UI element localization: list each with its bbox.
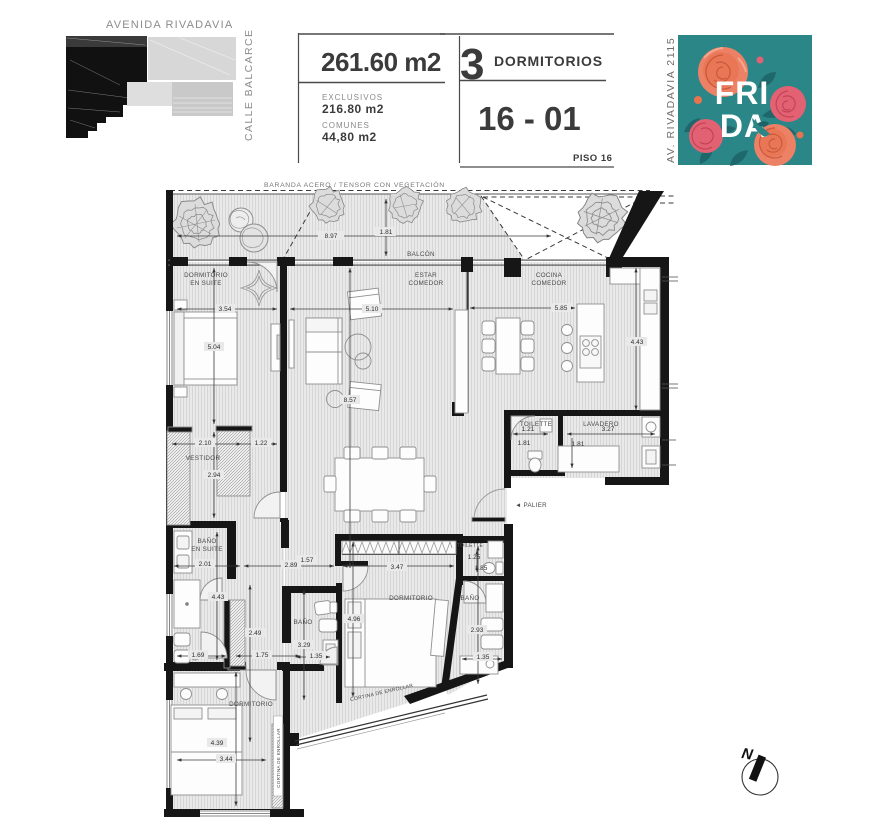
svg-text:AVENIDA RIVADAVIA: AVENIDA RIVADAVIA: [106, 19, 233, 31]
svg-text:261.60 m2: 261.60 m2: [321, 47, 441, 77]
svg-text:8.57: 8.57: [344, 397, 357, 404]
svg-text:EN SUITE: EN SUITE: [191, 546, 222, 553]
svg-text:1.25: 1.25: [468, 554, 481, 561]
svg-text:BAÑO: BAÑO: [460, 593, 479, 602]
svg-text:TOILETTE: TOILETTE: [520, 421, 552, 428]
svg-text:2.49: 2.49: [249, 630, 262, 637]
svg-text:4.39: 4.39: [211, 740, 224, 747]
svg-text:COMEDOR: COMEDOR: [532, 280, 567, 287]
svg-text:1.85: 1.85: [475, 565, 488, 572]
svg-text:2.01: 2.01: [199, 561, 212, 568]
svg-text:BARANDA ACERO / TENSOR CON VEG: BARANDA ACERO / TENSOR CON VEGETACIÓN: [264, 180, 445, 189]
svg-text:CALLE BALCARCE: CALLE BALCARCE: [243, 29, 255, 141]
svg-text:5.10: 5.10: [366, 306, 379, 313]
svg-text:3.29: 3.29: [298, 642, 311, 649]
svg-text:COMUNES: COMUNES: [322, 121, 370, 130]
svg-text:1.81: 1.81: [380, 229, 393, 236]
svg-text:AV. RIVADAVIA 2115: AV. RIVADAVIA 2115: [665, 37, 677, 163]
svg-text:1.35: 1.35: [310, 653, 323, 660]
svg-text:1.22: 1.22: [255, 440, 268, 447]
svg-text:216.80 m2: 216.80 m2: [322, 102, 384, 116]
svg-text:LAVADERO: LAVADERO: [583, 421, 619, 428]
svg-text:COMEDOR: COMEDOR: [409, 280, 444, 287]
svg-text:2.10: 2.10: [199, 440, 212, 447]
svg-text:BALCÓN: BALCÓN: [407, 249, 435, 258]
svg-text:FRI: FRI: [715, 75, 770, 111]
svg-text:CORTINA DE ENROLLAR: CORTINA DE ENROLLAR: [276, 728, 281, 788]
svg-text:2.93: 2.93: [471, 627, 484, 634]
svg-text:3.47: 3.47: [391, 564, 404, 571]
svg-text:4.43: 4.43: [631, 339, 644, 346]
svg-text:5.04: 5.04: [208, 344, 221, 351]
svg-text:3: 3: [460, 40, 484, 89]
svg-text:1.57: 1.57: [301, 557, 314, 564]
svg-text:EN SUITE: EN SUITE: [190, 280, 221, 287]
svg-text:◄ PALIER: ◄ PALIER: [515, 502, 547, 509]
svg-text:COCINA: COCINA: [536, 272, 563, 279]
svg-text:1.69: 1.69: [192, 652, 205, 659]
svg-text:5.85: 5.85: [555, 305, 568, 312]
svg-text:4.43: 4.43: [212, 594, 225, 601]
svg-text:1.75: 1.75: [256, 652, 269, 659]
svg-text:3.54: 3.54: [219, 306, 232, 313]
svg-text:3.44: 3.44: [220, 756, 233, 763]
svg-text:VESTIDOR: VESTIDOR: [186, 455, 221, 462]
svg-text:DORMITORIO: DORMITORIO: [389, 595, 433, 602]
svg-text:2.89: 2.89: [285, 562, 298, 569]
svg-text:16 - 01: 16 - 01: [478, 100, 581, 137]
svg-text:DORMITORIO: DORMITORIO: [229, 701, 273, 708]
svg-text:8.97: 8.97: [325, 233, 338, 240]
svg-text:BAÑO: BAÑO: [293, 617, 312, 626]
svg-text:DORMITORIO: DORMITORIO: [184, 272, 228, 279]
svg-text:44,80 m2: 44,80 m2: [322, 130, 377, 144]
svg-text:DORMITORIOS: DORMITORIOS: [494, 53, 603, 69]
svg-text:1.35: 1.35: [477, 654, 490, 661]
svg-text:BAÑO: BAÑO: [197, 536, 216, 545]
svg-text:2.94: 2.94: [208, 472, 221, 479]
svg-text:1.81: 1.81: [518, 440, 531, 447]
svg-text:1.81: 1.81: [572, 441, 585, 448]
svg-text:PISO 16: PISO 16: [573, 153, 612, 164]
svg-text:4.96: 4.96: [348, 616, 361, 623]
svg-text:EXCLUSIVOS: EXCLUSIVOS: [322, 93, 383, 102]
svg-text:ESTAR: ESTAR: [415, 272, 437, 279]
svg-text:TOILETTE: TOILETTE: [457, 543, 484, 549]
